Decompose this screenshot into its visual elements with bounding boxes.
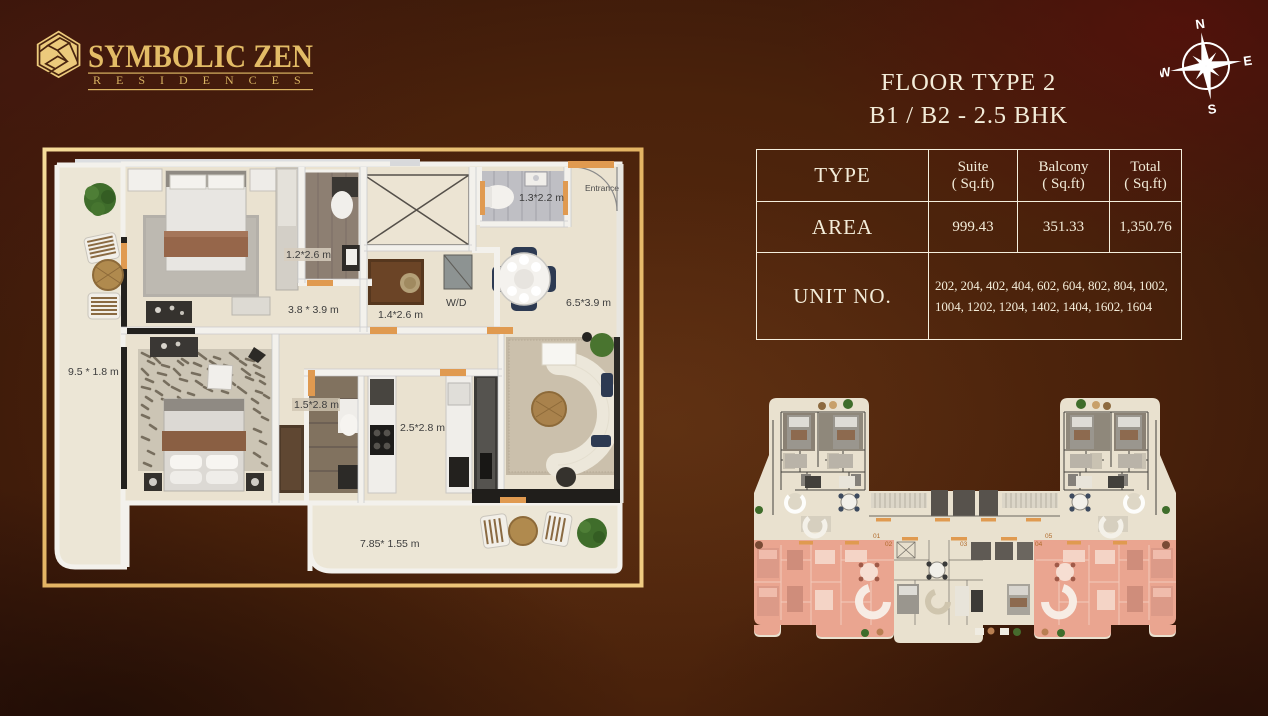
svg-text:2.5*2.8 m: 2.5*2.8 m	[400, 422, 445, 434]
svg-text:3.8 * 3.9 m: 3.8 * 3.9 m	[288, 304, 339, 316]
svg-text:1.5*2.8 m: 1.5*2.8 m	[294, 399, 339, 411]
svg-text:N: N	[1194, 18, 1205, 32]
svg-text:7.85* 1.55 m: 7.85* 1.55 m	[360, 538, 420, 550]
svg-text:SYMBOLIC ZEN: SYMBOLIC ZEN	[88, 39, 313, 75]
svg-text:E: E	[1242, 53, 1253, 69]
svg-text:1.3*2.2 m: 1.3*2.2 m	[519, 192, 564, 204]
svg-text:6.5*3.9 m: 6.5*3.9 m	[566, 297, 611, 309]
svg-text:RESIDENCES: RESIDENCES	[93, 73, 316, 87]
svg-text:03: 03	[960, 541, 968, 548]
svg-text:02: 02	[885, 541, 893, 548]
svg-text:05: 05	[1045, 533, 1053, 540]
svg-text:04: 04	[1035, 541, 1043, 548]
svg-text:1.4*2.6 m: 1.4*2.6 m	[378, 309, 423, 321]
svg-text:9.5 * 1.8 m: 9.5 * 1.8 m	[68, 366, 119, 378]
svg-text:S: S	[1207, 101, 1218, 117]
svg-text:Entrance: Entrance	[585, 183, 619, 193]
svg-text:01: 01	[873, 533, 881, 540]
svg-text:W/D: W/D	[446, 297, 467, 309]
svg-text:1.2*2.6 m: 1.2*2.6 m	[286, 249, 331, 261]
